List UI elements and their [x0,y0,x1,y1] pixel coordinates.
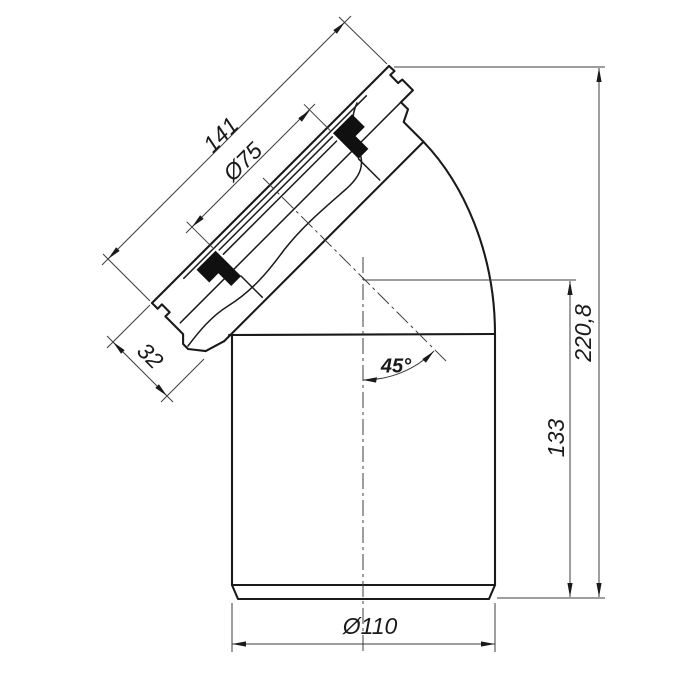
bend-outer-arc [424,142,496,334]
ext-75-a [187,222,213,248]
flange-back-face [224,142,423,341]
bend-flange [152,66,495,351]
arrow-75-ne [298,110,310,122]
flange-sw-profile [152,303,224,351]
technical-drawing-page: 141 Ø75 32 45° 220,8 133 Ø110 [0,0,700,700]
technical-drawing: 141 Ø75 32 45° 220,8 133 Ø110 [0,0,700,700]
vertical-pipe [229,334,495,599]
dim-label-socket-depth: 32 [132,337,169,374]
arrow-110-right [481,641,495,646]
dimension-lines [102,16,599,644]
arrow-110-left [232,641,246,646]
arrow-45-left [363,377,377,382]
arrow-133-bot [567,583,572,597]
centerlines [263,178,446,651]
ext-141-b [339,17,387,64]
dimension-labels: 141 Ø75 32 45° 220,8 133 Ø110 [132,112,596,639]
dim-label-bend-angle: 45° [380,355,412,377]
dim-label-body-height: 133 [543,419,569,458]
dim-label-pipe-diameter: Ø110 [342,613,398,639]
arrow-45-right [422,351,434,363]
ext-32-b [161,359,204,402]
ext-32-a [107,305,150,348]
flange-ne-profile [389,66,424,142]
flange-rim-inner-line [184,96,366,278]
arrow-2208-bot [596,583,601,597]
pipe-shoulder [229,334,495,335]
dim-label-total-height: 220,8 [570,304,596,363]
ext-141-a [103,254,150,301]
arrow-133-top [567,281,572,295]
arrow-2208-top [596,68,601,82]
ext-75-b [304,104,330,130]
